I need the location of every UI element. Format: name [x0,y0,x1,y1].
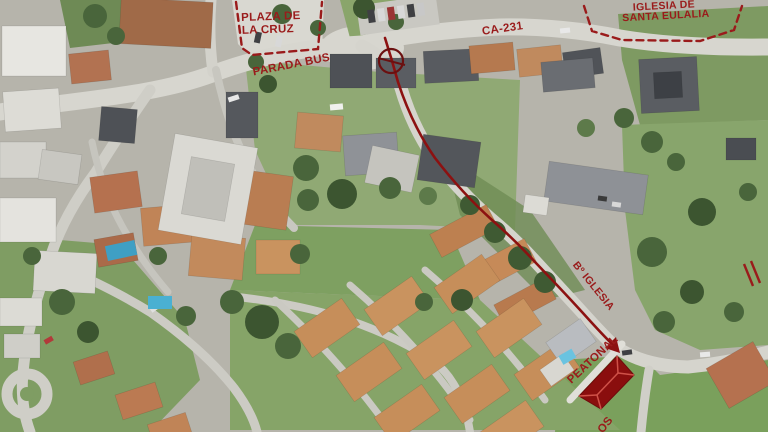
swimming-pool [148,296,172,309]
aerial-map-canvas: PLAZA DE LA CRUZ PARADA BUS CA-231 IGLES… [0,0,768,432]
plaza-label-line1: PLAZA DE [241,10,301,24]
map-figure: PLAZA DE LA CRUZ PARADA BUS CA-231 IGLES… [0,0,768,432]
plaza-label-line2: LA CRUZ [242,23,295,37]
